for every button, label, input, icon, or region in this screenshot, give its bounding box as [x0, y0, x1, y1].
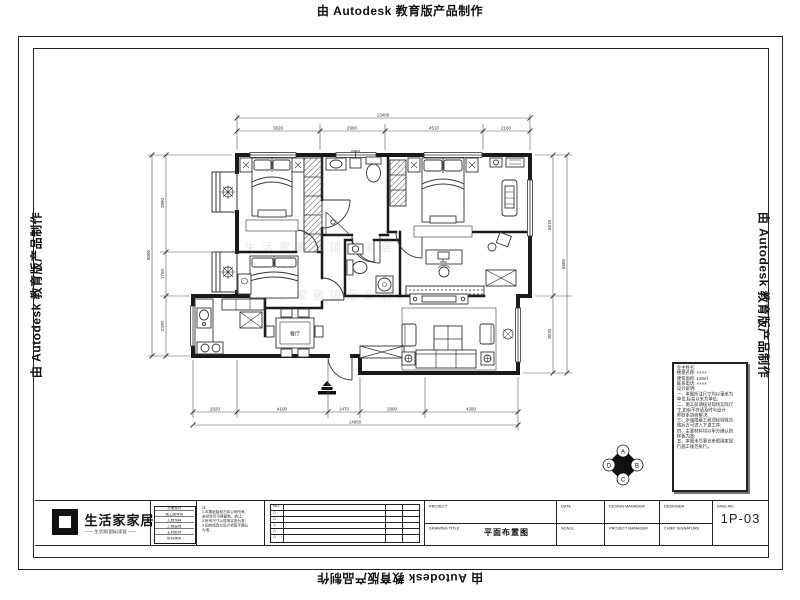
- svg-text:2020: 2020: [210, 407, 221, 412]
- revision-symbol: △: [273, 517, 276, 520]
- services-table: 方案设计施工图深化工程预算工程监理主材配饰售后服务: [154, 506, 196, 544]
- dining-set: 餐厅: [266, 309, 323, 357]
- drawing-title: 平面布置图: [467, 527, 547, 538]
- svg-text:2990: 2990: [347, 126, 358, 131]
- svg-text:3860: 3860: [160, 197, 165, 208]
- dwg-no-label: DWG NO.: [717, 505, 735, 509]
- cad-sheet: 由 Autodesk 教育版产品制作 由 Autodesk 教育版产品制作 由 …: [0, 0, 800, 600]
- entry-marker-icon: [318, 381, 336, 395]
- revision-symbol: △: [273, 511, 276, 514]
- field-date: DATE: [561, 505, 571, 509]
- project-label: PROJECT: [429, 505, 447, 509]
- bathroom1-fixtures: [326, 151, 381, 235]
- field-design-manager: DESIGN MANAGER: [609, 505, 645, 509]
- design-notes-panel: 业主姓名:楼盘名称: ××××建筑面积: 128㎡联系电话: ××××设计说明:…: [672, 362, 748, 492]
- svg-text:B: B: [635, 463, 639, 469]
- dining-room-label: 餐厅: [290, 331, 300, 338]
- field-scale: SCALE: [561, 527, 574, 531]
- study-furniture: [406, 250, 516, 295]
- revision-table: NO. △ △ △ △ △: [270, 504, 420, 543]
- bedroom1-furniture: [240, 158, 322, 252]
- bedroom3-furniture: [238, 256, 298, 298]
- svg-text:2160: 2160: [501, 126, 512, 131]
- revision-symbol: △: [273, 523, 276, 526]
- svg-text:4190: 4190: [277, 407, 288, 412]
- title-block: 生活家家居 —— 生活家(国际)家居 —— 方案设计施工图深化工程预算工程监理主…: [35, 500, 768, 547]
- kitchen-fixtures: [195, 299, 264, 354]
- field-chief-signature: CHIEF SIGNATURE: [664, 527, 699, 531]
- svg-text:3070: 3070: [547, 328, 552, 339]
- elevation-marker: A B C D: [603, 445, 643, 485]
- drawing-title-label: DRAWING TITLE: [429, 527, 459, 531]
- field-project-manager: PROJECT MANAGER: [609, 527, 648, 531]
- master-bedroom-furniture: [390, 158, 524, 251]
- svg-text:8680: 8680: [561, 258, 566, 269]
- design-notes-text: 业主姓名:楼盘名称: ××××建筑面积: 128㎡联系电话: ××××设计说明:…: [674, 364, 746, 450]
- revision-header-no: NO.: [273, 505, 280, 508]
- company-tagline: —— 生活家(国际)家居 ——: [85, 528, 136, 534]
- svg-text:5610: 5610: [547, 219, 552, 230]
- svg-text:D: D: [607, 463, 612, 469]
- revision-symbol: △: [273, 529, 276, 532]
- living-room-furniture: [402, 294, 513, 370]
- drawing-number: 1P-03: [715, 511, 767, 526]
- svg-text:1750: 1750: [160, 268, 165, 279]
- title-block-notes: 注:1.本图纸版权归本公司所有,未经许可不得复制、转让;2.所有尺寸以现场实测为…: [202, 506, 238, 533]
- svg-text:14950: 14950: [349, 420, 362, 425]
- bay-window-2: [212, 252, 237, 292]
- field-designer: DESIGNER: [664, 505, 684, 509]
- svg-text:3820: 3820: [273, 126, 284, 131]
- svg-text:4510: 4510: [429, 126, 440, 131]
- svg-text:4280: 4280: [466, 407, 477, 412]
- svg-text:1470: 1470: [339, 407, 350, 412]
- svg-text:13480: 13480: [377, 113, 390, 118]
- bay-window-1: [212, 172, 237, 212]
- company-logo-icon: [52, 509, 78, 535]
- company-name: 生活家家居: [85, 510, 155, 529]
- svg-text:2390: 2390: [160, 320, 165, 331]
- svg-text:C: C: [621, 477, 626, 483]
- svg-text:A: A: [621, 449, 625, 455]
- svg-text:2990: 2990: [387, 407, 398, 412]
- revision-symbol: △: [273, 535, 276, 538]
- svg-text:8000: 8000: [146, 249, 151, 260]
